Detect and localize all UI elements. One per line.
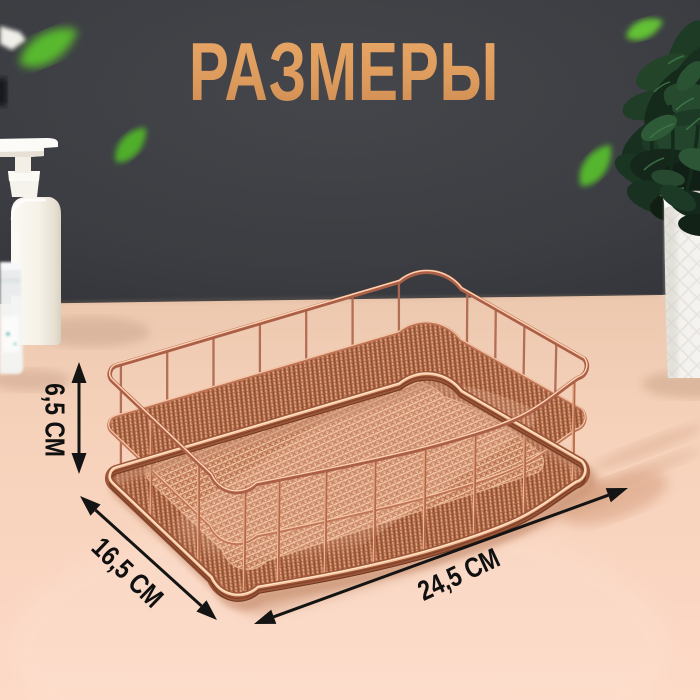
svg-text:РАЗМЕРЫ: РАЗМЕРЫ — [189, 26, 499, 119]
svg-text:6,5 СМ: 6,5 СМ — [39, 383, 70, 457]
